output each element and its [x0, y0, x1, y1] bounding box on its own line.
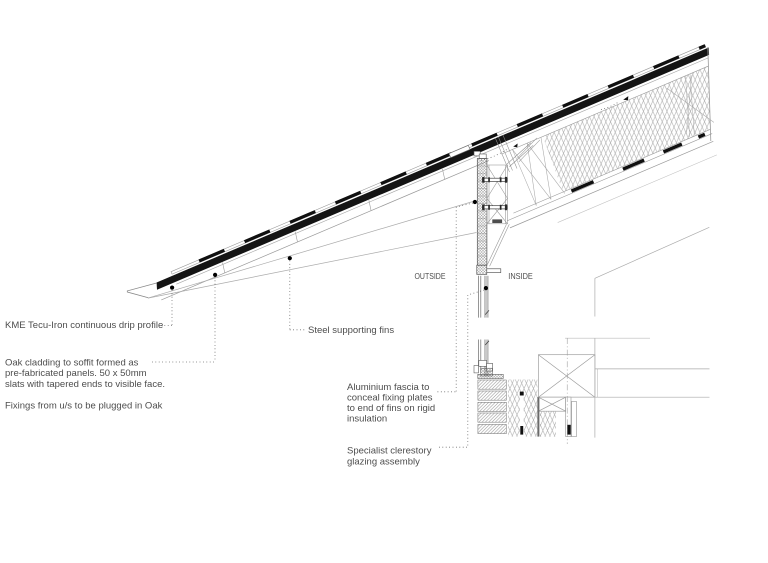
svg-text:Fixings from u/s to be plugged: Fixings from u/s to be plugged in Oak: [5, 401, 163, 412]
svg-text:pre-fabricated panels. 50 x 50: pre-fabricated panels. 50 x 50mm: [5, 368, 147, 379]
svg-text:Oak cladding to soffit formed: Oak cladding to soffit formed as: [5, 357, 139, 368]
svg-text:glazing assembly: glazing assembly: [347, 456, 420, 467]
svg-text:Aluminium fascia to: Aluminium fascia to: [347, 382, 429, 393]
svg-text:conceal fixing plates: conceal fixing plates: [347, 392, 433, 403]
svg-text:Steel supporting fins: Steel supporting fins: [308, 325, 394, 336]
svg-text:Specialist clerestory: Specialist clerestory: [347, 445, 432, 456]
svg-text:KME Tecu-Iron continuous drip: KME Tecu-Iron continuous drip profile: [5, 320, 163, 331]
svg-text:OUTSIDE: OUTSIDE: [415, 271, 446, 281]
svg-text:INSIDE: INSIDE: [508, 271, 533, 281]
svg-text:to end of fins on rigid: to end of fins on rigid: [347, 403, 435, 414]
svg-text:insulation: insulation: [347, 413, 387, 424]
svg-text:slats with tapered ends to vis: slats with tapered ends to visible face.: [5, 379, 165, 390]
